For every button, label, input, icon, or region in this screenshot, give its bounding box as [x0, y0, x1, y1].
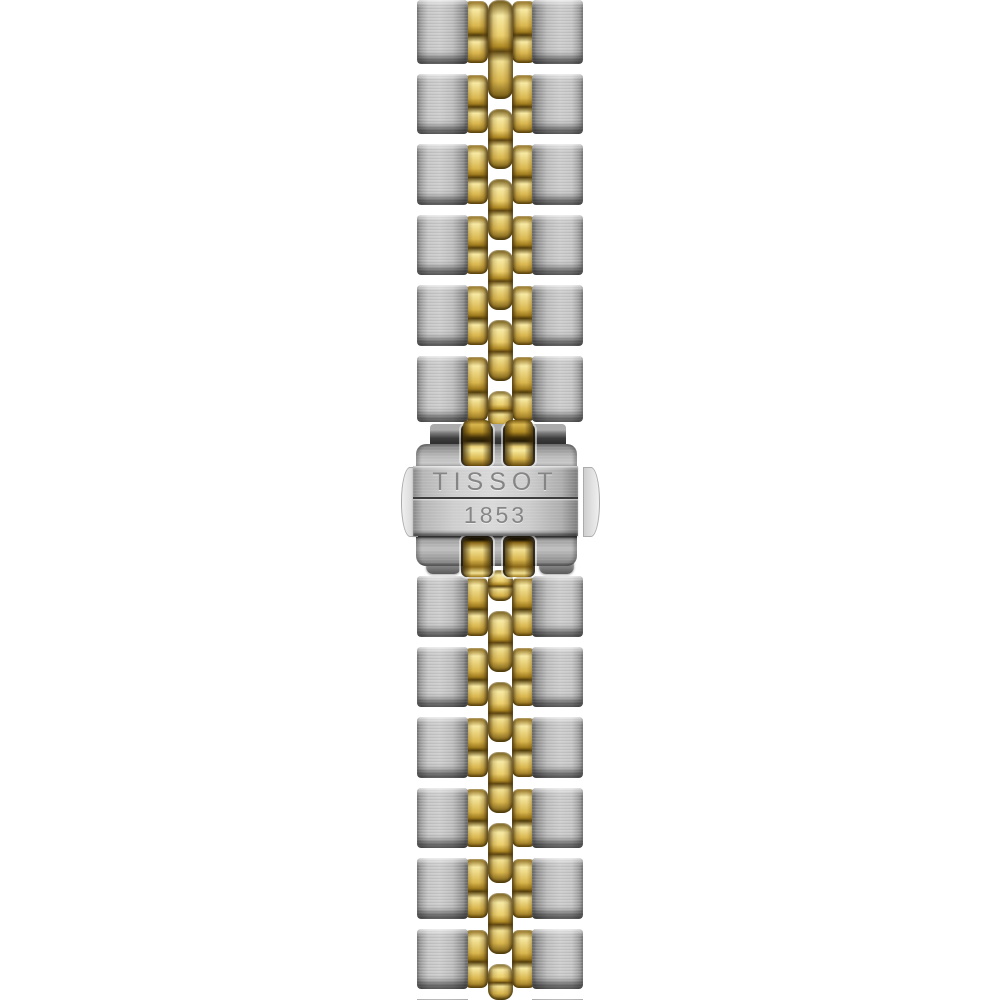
- clasp-plate: TISSOT 1853: [413, 466, 578, 536]
- steel-link: [417, 215, 468, 276]
- gold-link: [488, 179, 513, 240]
- steel-link: [417, 717, 468, 778]
- steel-link: [532, 576, 583, 637]
- steel-link: [532, 717, 583, 778]
- steel-link: [417, 858, 468, 919]
- gold-link: [488, 250, 513, 311]
- gold-link: [488, 320, 513, 381]
- gold-link: [488, 109, 513, 170]
- steel-link: [417, 144, 468, 205]
- steel-link: [532, 0, 583, 64]
- steel-link: [532, 788, 583, 849]
- steel-link: [417, 285, 468, 346]
- gold-link: [488, 611, 513, 672]
- gold-link-clasp: [463, 538, 491, 577]
- watch-bracelet: TISSOT 1853: [417, 0, 583, 1000]
- steel-link: [417, 74, 468, 135]
- steel-link: [532, 74, 583, 135]
- steel-link: [532, 858, 583, 919]
- gold-link: [488, 682, 513, 743]
- steel-link: [417, 356, 468, 423]
- steel-link: [532, 929, 583, 990]
- steel-link: [417, 0, 468, 64]
- steel-link: [417, 788, 468, 849]
- gold-link: [488, 893, 513, 954]
- gold-link-clasp: [463, 420, 491, 466]
- gold-link-clasp: [505, 420, 533, 466]
- steel-link: [532, 356, 583, 423]
- steel-link: [532, 215, 583, 276]
- gold-link: [488, 964, 513, 1000]
- steel-link: [532, 285, 583, 346]
- gold-link: [488, 0, 513, 99]
- clasp-upper-section: [416, 444, 577, 466]
- steel-link: [532, 647, 583, 708]
- clasp-year-engraving: 1853: [413, 499, 578, 533]
- product-photo: TISSOT 1853: [0, 0, 1000, 1000]
- clasp-fold-edge: [430, 424, 566, 444]
- clasp-pusher-right: [583, 467, 600, 537]
- gold-link: [488, 823, 513, 884]
- steel-link: [417, 929, 468, 990]
- clasp-brand-engraving: TISSOT: [413, 467, 578, 498]
- gold-link: [488, 752, 513, 813]
- clasp-lower-section: [416, 535, 577, 566]
- gold-link-clasp: [505, 538, 533, 577]
- steel-link: [417, 576, 468, 637]
- steel-link: [417, 647, 468, 708]
- steel-link: [532, 144, 583, 205]
